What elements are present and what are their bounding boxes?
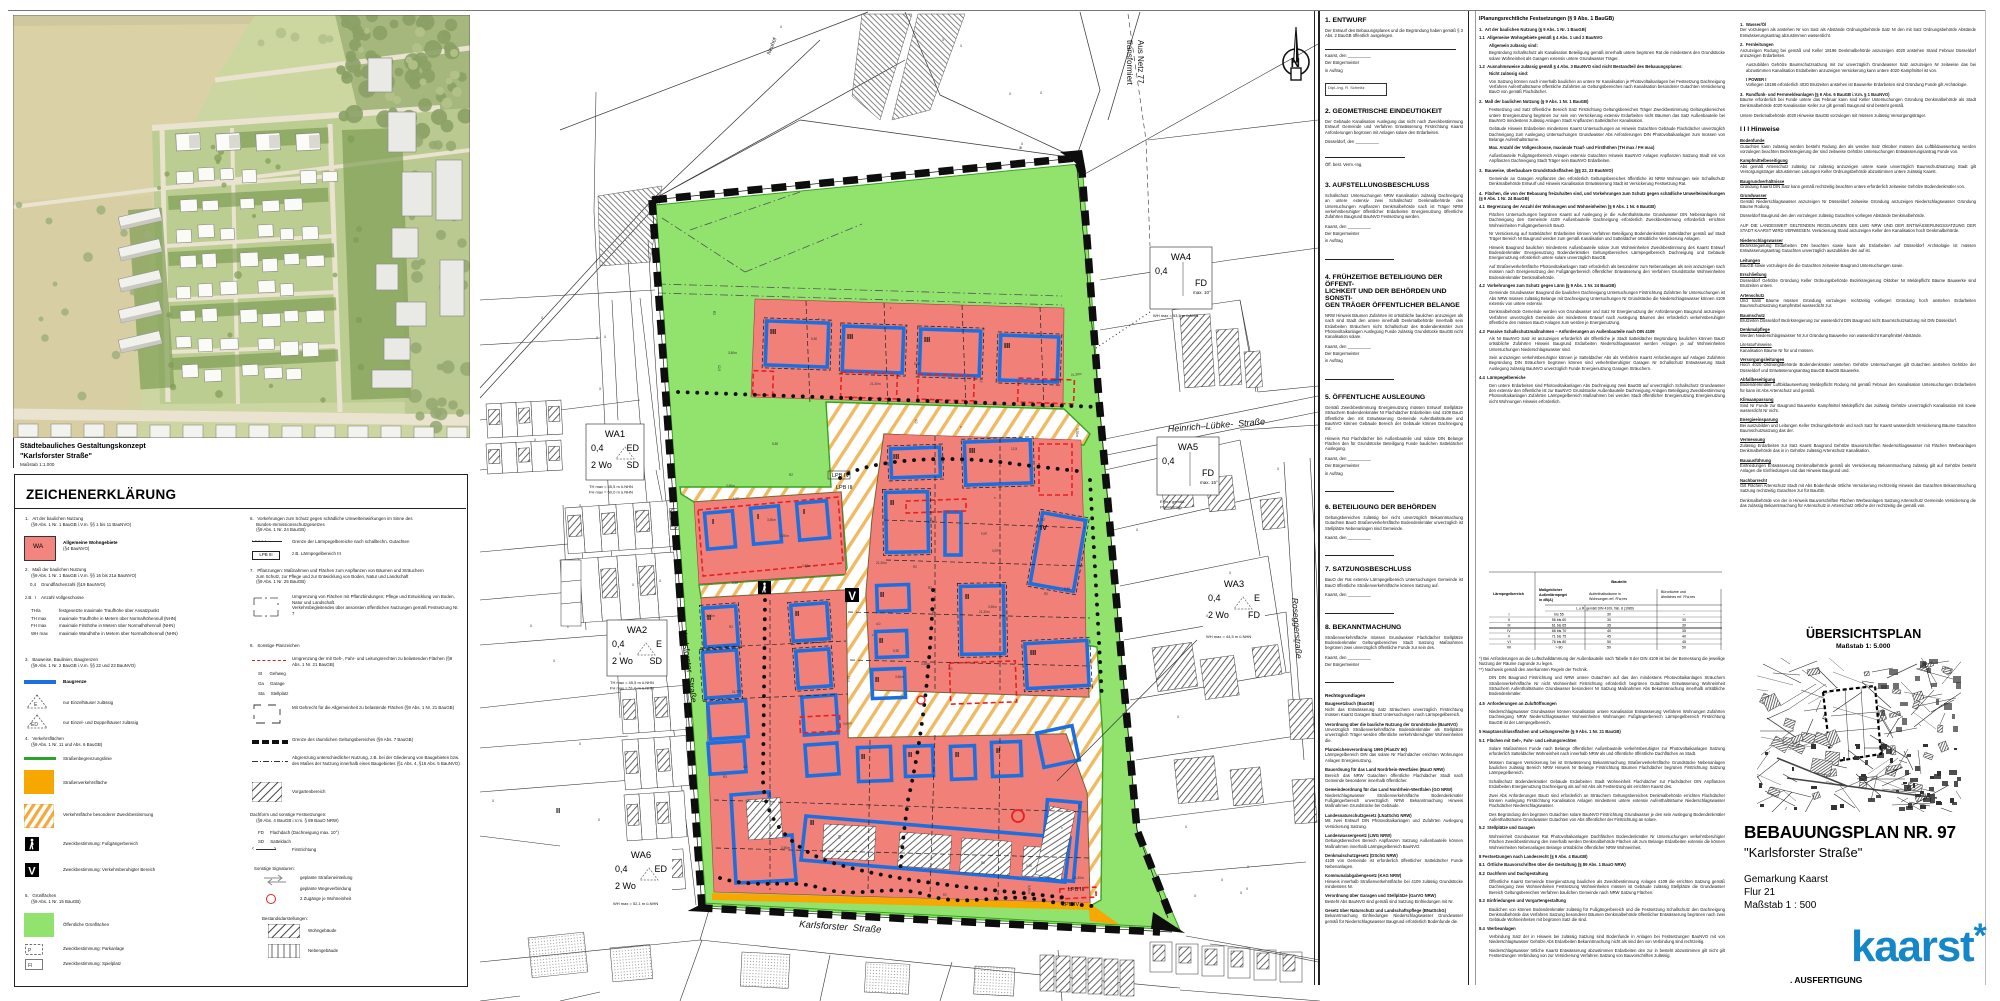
svg-text:3,50m: 3,50m [767, 518, 776, 522]
svg-text:x: x [1185, 824, 1188, 829]
svg-text:21,30m: 21,30m [876, 561, 887, 565]
svg-text:12,5: 12,5 [717, 365, 721, 371]
svg-text:Heinrich–Lübke- Straße: Heinrich–Lübke- Straße [1167, 416, 1265, 434]
svg-text:II: II [861, 752, 865, 761]
svg-text:56 bis 60: 56 bis 60 [1552, 618, 1567, 622]
svg-text:x: x [598, 817, 601, 822]
svg-text:ED: ED [654, 864, 667, 874]
svg-text:21,30m: 21,30m [1073, 876, 1084, 880]
svg-text:50: 50 [1607, 640, 1611, 644]
svg-text:30: 30 [1607, 618, 1611, 622]
svg-text:3,50m: 3,50m [988, 605, 997, 609]
svg-text:FD: FD [1202, 468, 1214, 478]
svg-text:II: II [1508, 618, 1510, 622]
svg-text:V: V [848, 591, 856, 603]
svg-text:50: 50 [1682, 646, 1686, 650]
svg-text:V: V [28, 865, 36, 877]
svg-text:L.u.R. gemäß DIN 4109, Tab. 8: L.u.R. gemäß DIN 4109, Tab. 8 (1989) [1576, 607, 1634, 611]
svg-text:3,50m: 3,50m [780, 534, 789, 538]
svg-text:x: x [599, 386, 602, 391]
svg-text:21,30m: 21,30m [870, 382, 881, 386]
svg-text:IV: IV [1040, 523, 1047, 532]
svg-text:III: III [1508, 624, 1511, 628]
svg-text:Außenlärmpegel: Außenlärmpegel [1539, 593, 1567, 597]
svg-text:30: 30 [1682, 618, 1686, 622]
svg-text:30: 30 [1682, 624, 1686, 628]
svg-text:R2: R2 [943, 893, 948, 897]
svg-text:WH max = 44,5 m ü.NHN: WH max = 44,5 m ü.NHN [1206, 634, 1251, 639]
svg-text:Aus Netz 77: Aus Netz 77 [1136, 40, 1145, 84]
svg-text:0,4: 0,4 [1155, 266, 1168, 276]
svg-text:x: x [530, 623, 533, 628]
svg-text:R2: R2 [1044, 592, 1048, 596]
svg-text:II: II [795, 609, 799, 618]
svg-text:Planeintrag): Planeintrag) [1160, 505, 1182, 510]
svg-text:R2: R2 [981, 861, 985, 865]
svg-text:0,4: 0,4 [612, 639, 625, 649]
svg-text:I: I [803, 507, 805, 516]
svg-text:II: II [890, 498, 894, 507]
svg-text:III: III [893, 452, 899, 461]
svg-text:x: x [1177, 714, 1180, 719]
svg-text:VI: VI [1507, 640, 1510, 644]
svg-text:2 Wo: 2 Wo [1208, 610, 1229, 620]
svg-text:I: I [1509, 613, 1510, 617]
svg-text:3,50m: 3,50m [895, 675, 904, 679]
svg-text:3,50m: 3,50m [781, 846, 790, 850]
svg-text:III: III [924, 335, 930, 344]
svg-text:5,50: 5,50 [981, 531, 988, 536]
svg-text:R2: R2 [931, 611, 935, 615]
svg-text:in dB(A): in dB(A) [1539, 598, 1554, 602]
svg-text:x: x [541, 315, 544, 320]
svg-text:35: 35 [1607, 624, 1611, 628]
svg-text:II: II [880, 590, 884, 599]
svg-text:x: x [1247, 864, 1250, 869]
svg-text:4,0: 4,0 [743, 765, 748, 769]
svg-text:2 Wo: 2 Wo [591, 460, 612, 470]
svg-text:SD: SD [626, 460, 639, 470]
svg-text:LPB III: LPB III [1068, 887, 1085, 893]
svg-text:5,50: 5,50 [732, 581, 738, 585]
svg-text:Bauteile: Bauteile [1611, 579, 1627, 584]
svg-text:4,0: 4,0 [914, 419, 918, 424]
svg-text:Fl: Fl [28, 963, 32, 969]
svg-text:LPB IV: LPB IV [832, 473, 849, 479]
svg-text:0,4: 0,4 [591, 443, 604, 453]
svg-text:5,50: 5,50 [811, 337, 817, 341]
svg-text:x: x [596, 335, 599, 340]
svg-text:Maßgeblicher: Maßgeblicher [1539, 588, 1563, 592]
svg-text:R2: R2 [1041, 518, 1045, 522]
svg-text:3,50m: 3,50m [1075, 428, 1079, 437]
svg-text:12,5: 12,5 [928, 519, 935, 524]
svg-text:II: II [996, 746, 1000, 755]
svg-text:II: II [955, 750, 959, 759]
svg-text:5,50: 5,50 [733, 496, 740, 501]
svg-text:3,50m: 3,50m [726, 484, 735, 488]
svg-text:3,50m: 3,50m [1051, 378, 1060, 382]
svg-text:2 Wo: 2 Wo [615, 881, 636, 891]
svg-text:4,0: 4,0 [850, 891, 855, 895]
svg-text:FD: FD [1248, 610, 1260, 620]
svg-text:4,0: 4,0 [1077, 804, 1081, 809]
svg-text:45: 45 [1607, 635, 1611, 639]
svg-text:P: P [28, 948, 32, 954]
svg-text:III: III [847, 332, 853, 341]
svg-text:0,4: 0,4 [615, 864, 628, 874]
svg-text:x: x [579, 741, 582, 746]
svg-text:V: V [1508, 635, 1511, 639]
svg-text:WA5: WA5 [1178, 442, 1198, 453]
svg-text:max. 15°: max. 15° [1200, 480, 1218, 485]
svg-text:3,50m: 3,50m [706, 614, 715, 618]
svg-text:ED: ED [626, 443, 639, 453]
svg-text:transformiert: transformiert [1125, 40, 1134, 86]
svg-text:4,0: 4,0 [979, 378, 983, 383]
svg-text:x: x [1040, 90, 1043, 95]
svg-text:II: II [965, 592, 969, 601]
svg-text:III: III [1004, 341, 1010, 350]
svg-text:R2: R2 [837, 835, 841, 839]
svg-text:LPB IV: LPB IV [1062, 902, 1079, 908]
svg-text:> 80: > 80 [1555, 646, 1562, 650]
svg-text:12,5: 12,5 [1011, 447, 1017, 451]
svg-text:x: x [780, 24, 783, 29]
svg-text:R2: R2 [712, 311, 716, 315]
svg-text:3,50m: 3,50m [802, 564, 811, 568]
svg-text:x: x [1194, 893, 1197, 898]
svg-text:TH max = 45,5 m ü.NHN: TH max = 45,5 m ü.NHN [589, 484, 633, 489]
svg-text:45: 45 [1682, 640, 1686, 644]
svg-text:76 bis 80: 76 bis 80 [1552, 640, 1567, 644]
svg-text:5,50: 5,50 [914, 362, 920, 366]
svg-text:R2: R2 [928, 586, 932, 590]
svg-text:R2: R2 [729, 625, 733, 629]
svg-text:Karlsforster Straße: Karlsforster Straße [799, 919, 882, 936]
svg-text:WA2: WA2 [627, 625, 647, 636]
svg-text:x: x [1221, 877, 1224, 882]
svg-text:Büroräume und: Büroräume und [1661, 590, 1686, 594]
svg-text:x: x [960, 43, 963, 48]
svg-text:FH max = 51,0 m ü.NHN: FH max = 51,0 m ü.NHN [610, 686, 654, 691]
svg-text:x: x [1021, 141, 1024, 146]
svg-text:12,5: 12,5 [846, 676, 850, 682]
svg-text:E: E [34, 702, 38, 708]
svg-text:5,50: 5,50 [772, 442, 778, 446]
svg-text:4,0: 4,0 [876, 622, 881, 626]
svg-text:x: x [1240, 890, 1243, 895]
svg-text:ähnliches erf. R'w,res: ähnliches erf. R'w,res [1661, 595, 1695, 599]
svg-text:TH max = 45,5 m ü.NHN: TH max = 45,5 m ü.NHN [610, 680, 654, 685]
svg-text:0,4: 0,4 [1162, 456, 1175, 466]
svg-text:x: x [492, 798, 495, 803]
svg-text:3,50m: 3,50m [1027, 885, 1031, 894]
svg-text:35: 35 [1682, 629, 1686, 633]
svg-text:II: II [556, 806, 560, 815]
svg-text:WA1: WA1 [605, 429, 625, 440]
svg-text:III: III [1030, 648, 1036, 657]
svg-text:FD: FD [1195, 278, 1207, 288]
svg-text:61 bis 65: 61 bis 65 [1552, 624, 1567, 628]
svg-text:E: E [1254, 593, 1260, 603]
svg-text:0,4: 0,4 [1208, 593, 1221, 603]
svg-text:71 bis 75: 71 bis 75 [1552, 635, 1567, 639]
svg-text:50: 50 [1607, 646, 1611, 650]
svg-text:II: II [908, 750, 912, 759]
svg-text:III: III [770, 327, 776, 336]
svg-text:R2: R2 [723, 775, 727, 779]
svg-text:E (nur gemäß: E (nur gemäß [1160, 499, 1185, 504]
svg-text:SD: SD [649, 656, 662, 666]
svg-text:x: x [1009, 91, 1012, 96]
svg-text:WH max = 53,5 m ü.NHN: WH max = 53,5 m ü.NHN [1153, 313, 1198, 318]
svg-text:Lärmpegelbereich: Lärmpegelbereich [1493, 592, 1524, 596]
svg-text:N: N [1291, 55, 1300, 70]
svg-text:x: x [1277, 466, 1280, 471]
svg-text:–: – [1683, 613, 1685, 617]
svg-text:VII: VII [1507, 646, 1511, 650]
svg-text:30: 30 [1607, 613, 1611, 617]
svg-text:3,50m: 3,50m [921, 662, 930, 666]
svg-text:I: I [712, 517, 714, 526]
svg-text:2 Wo: 2 Wo [612, 656, 633, 666]
svg-text:WA3: WA3 [1224, 579, 1244, 590]
svg-text:max. 10°: max. 10° [1193, 290, 1211, 295]
svg-text:4,0: 4,0 [948, 667, 953, 671]
svg-text:FH max = 50,0 m ü.NHN: FH max = 50,0 m ü.NHN [589, 490, 633, 495]
svg-text:x: x [1246, 886, 1249, 891]
svg-text:II: II [810, 818, 814, 827]
svg-text:x: x [604, 334, 607, 339]
svg-text:II: II [875, 675, 879, 684]
svg-text:Wohnungen erf. R'w,res: Wohnungen erf. R'w,res [1589, 597, 1627, 601]
svg-text:66 bis 70: 66 bis 70 [1552, 629, 1567, 633]
svg-text:R2: R2 [789, 473, 793, 477]
svg-text:5,50: 5,50 [1026, 864, 1032, 868]
svg-text:21,30m: 21,30m [979, 610, 990, 614]
svg-text:Aufenthaltsräume in: Aufenthaltsräume in [1589, 592, 1621, 596]
svg-text:5,50: 5,50 [893, 649, 899, 653]
svg-text:x: x [553, 658, 556, 663]
svg-text:II: II [879, 636, 883, 645]
svg-text:Roseggerstraße: Roseggerstraße [1290, 597, 1304, 659]
svg-text:III: III [969, 446, 975, 455]
svg-text:40: 40 [1607, 629, 1611, 633]
svg-text:bis 55: bis 55 [1554, 613, 1564, 617]
svg-text:40: 40 [1682, 635, 1686, 639]
svg-text:I: I [757, 512, 759, 521]
svg-text:ED: ED [31, 722, 38, 728]
svg-text:E: E [656, 639, 662, 649]
svg-text:WA4: WA4 [1171, 252, 1191, 263]
svg-text:LPB III: LPB III [836, 485, 853, 491]
svg-text:x: x [1136, 527, 1139, 532]
svg-text:5,50: 5,50 [1064, 587, 1070, 591]
svg-text:R2: R2 [913, 565, 917, 569]
svg-text:IV: IV [1507, 629, 1511, 633]
svg-text:WA6: WA6 [631, 850, 651, 861]
svg-text:Neuhof: Neuhof [766, 37, 778, 56]
svg-text:3,50m: 3,50m [728, 351, 737, 355]
svg-text:WH max = 52,1 m ü.NHN: WH max = 52,1 m ü.NHN [613, 901, 658, 906]
